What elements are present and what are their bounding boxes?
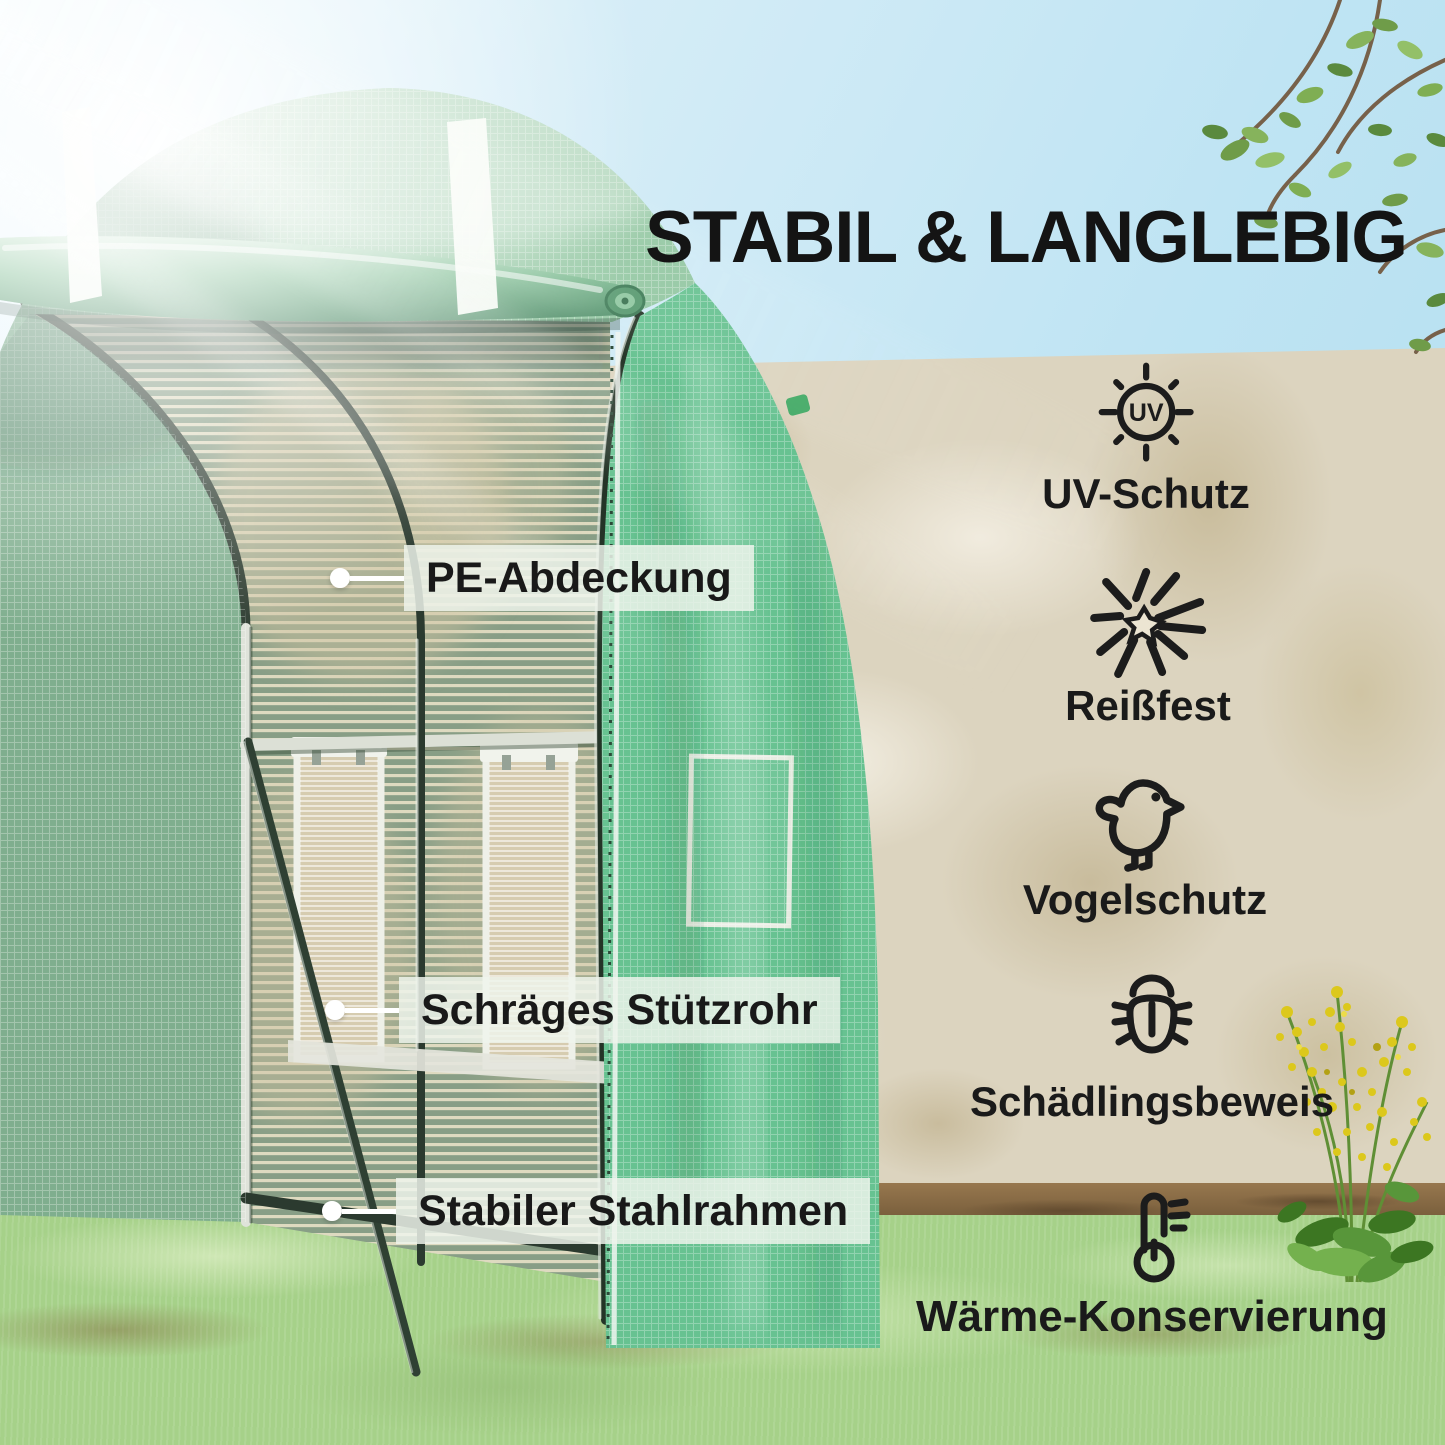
callout-line	[350, 576, 404, 581]
feature-label: Vogelschutz	[1023, 876, 1267, 924]
headline: STABIL & LANGLEBIG	[645, 196, 1407, 279]
callout-label: Schräges Stützrohr	[399, 977, 840, 1043]
tear-resistant-icon	[1088, 568, 1208, 680]
feature-tear-resistant: Reißfest	[1065, 568, 1231, 730]
uv-icon-text: UV	[1129, 399, 1164, 427]
callout-pe-cover: PE-Abdeckung	[330, 545, 754, 611]
feature-uv-protection: UV UV-Schutz	[1042, 360, 1250, 518]
feature-label: Schädlingsbeweis	[970, 1078, 1334, 1126]
callout-dot	[325, 1000, 345, 1020]
uv-sun-icon: UV	[1086, 360, 1206, 468]
callout-label: PE-Abdeckung	[404, 545, 754, 611]
callout-line	[345, 1008, 399, 1013]
bird-icon	[1085, 772, 1205, 874]
door-tie	[785, 393, 811, 416]
feature-pest-proof: Schädlingsbeweis	[970, 972, 1334, 1126]
callout-steel-frame: Stabiler Stahlrahmen	[322, 1178, 870, 1244]
feature-heat-retention: Wärme-Konservierung	[916, 1190, 1388, 1342]
callout-label: Stabiler Stahlrahmen	[396, 1178, 870, 1244]
callout-diagonal-support-tube: Schräges Stützrohr	[325, 977, 840, 1043]
callout-dot	[322, 1201, 342, 1221]
callout-dot	[330, 568, 350, 588]
feature-label: Wärme-Konservierung	[916, 1292, 1388, 1342]
greenhouse-product-infographic: STABIL & LANGLEBIG PE-Abdeckung Schräges…	[0, 0, 1445, 1445]
feature-bird-protection: Vogelschutz	[1023, 772, 1267, 924]
bug-icon	[1097, 972, 1207, 1076]
feature-label: UV-Schutz	[1042, 470, 1250, 518]
thermometer-icon	[1107, 1190, 1197, 1290]
feature-label: Reißfest	[1065, 682, 1231, 730]
callout-line	[342, 1209, 396, 1214]
